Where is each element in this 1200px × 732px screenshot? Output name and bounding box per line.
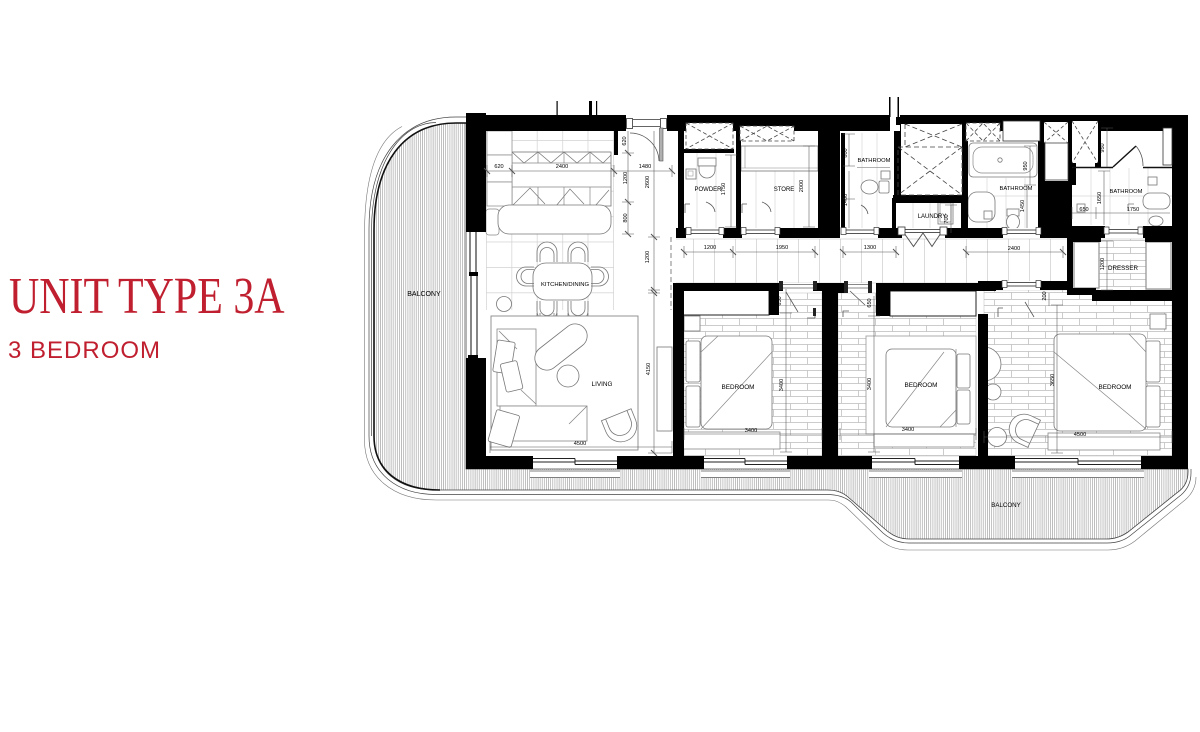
svg-text:1200: 1200	[645, 251, 651, 263]
svg-text:BATHROOM: BATHROOM	[1109, 189, 1142, 195]
svg-text:3400: 3400	[779, 379, 785, 391]
svg-text:1200: 1200	[1100, 258, 1106, 270]
svg-text:3400: 3400	[867, 378, 873, 390]
svg-text:1450: 1450	[1020, 200, 1026, 212]
svg-text:3400: 3400	[745, 428, 757, 434]
svg-text:1480: 1480	[639, 164, 651, 170]
svg-text:4150: 4150	[646, 363, 652, 375]
svg-text:LIVING: LIVING	[592, 381, 613, 388]
svg-text:950: 950	[1023, 161, 1029, 170]
svg-text:2400: 2400	[1008, 246, 1020, 252]
svg-text:620: 620	[494, 164, 503, 170]
svg-text:STORE: STORE	[774, 187, 795, 193]
svg-text:650: 650	[867, 298, 873, 307]
svg-text:2600: 2600	[645, 176, 651, 188]
svg-text:BALCONY: BALCONY	[991, 502, 1021, 509]
svg-text:1400: 1400	[843, 194, 849, 206]
svg-text:DRESSER: DRESSER	[1108, 265, 1138, 272]
svg-text:650: 650	[777, 296, 783, 305]
svg-text:BEDROOM: BEDROOM	[1098, 384, 1131, 391]
svg-text:4500: 4500	[574, 441, 586, 447]
svg-text:950: 950	[1100, 143, 1106, 152]
svg-text:3400: 3400	[902, 427, 914, 433]
svg-text:1200: 1200	[704, 245, 716, 251]
svg-text:800: 800	[843, 148, 849, 157]
svg-text:1750: 1750	[1127, 207, 1139, 213]
svg-text:2000: 2000	[799, 180, 805, 192]
svg-text:650: 650	[1079, 207, 1088, 213]
svg-text:4500: 4500	[1074, 432, 1086, 438]
svg-text:POWDER: POWDER	[695, 187, 723, 193]
svg-text:1200: 1200	[623, 172, 629, 184]
svg-text:BATHROOM: BATHROOM	[999, 186, 1032, 192]
svg-text:620: 620	[622, 136, 628, 145]
svg-text:LAUNDRY: LAUNDRY	[918, 214, 947, 220]
svg-text:BALCONY: BALCONY	[407, 291, 441, 298]
svg-text:1650: 1650	[1097, 192, 1103, 204]
svg-text:KITCHEN/DINING: KITCHEN/DINING	[541, 282, 590, 288]
svg-text:2400: 2400	[556, 164, 568, 170]
svg-text:1750: 1750	[721, 183, 727, 195]
svg-text:BATHROOM: BATHROOM	[857, 158, 890, 164]
svg-text:200: 200	[1042, 291, 1048, 300]
svg-text:800: 800	[623, 213, 629, 222]
svg-text:3650: 3650	[1050, 374, 1056, 386]
svg-text:BEDROOM: BEDROOM	[721, 384, 754, 391]
svg-text:BEDROOM: BEDROOM	[904, 382, 937, 389]
svg-text:1300: 1300	[864, 245, 876, 251]
svg-text:1950: 1950	[776, 245, 788, 251]
